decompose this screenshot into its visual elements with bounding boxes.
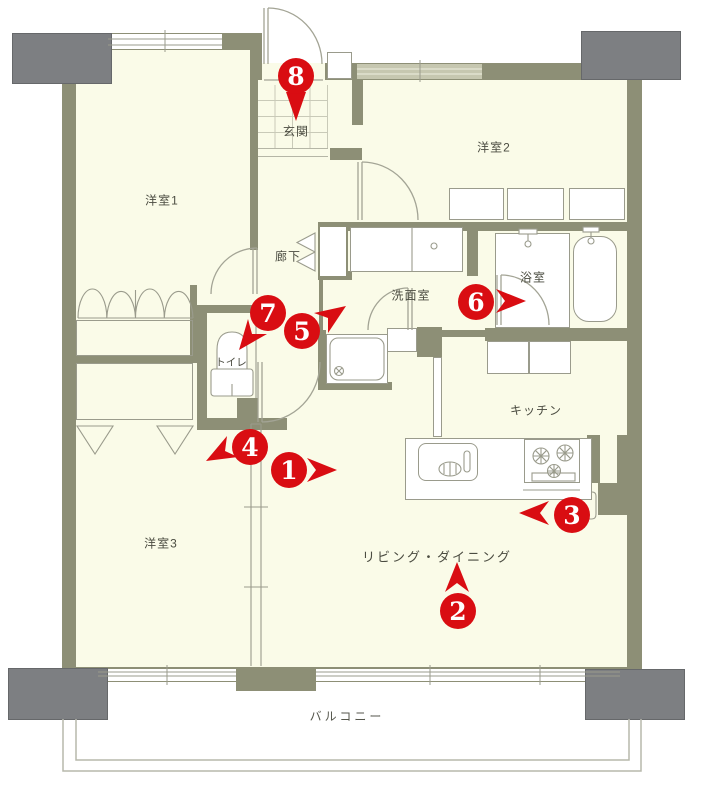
wall-washer-thin bbox=[319, 280, 323, 332]
room-label-yoshitsu3: 洋室3 bbox=[144, 535, 178, 552]
marker-4: 4 bbox=[232, 429, 268, 465]
room-label-living: リビング・ダイニング bbox=[362, 547, 512, 566]
genkan-step-line bbox=[258, 156, 328, 157]
wall-bath-bottom bbox=[485, 328, 627, 341]
genkan-step-line bbox=[258, 148, 328, 149]
room-label-senmen: 洗面室 bbox=[391, 287, 430, 304]
kitchen-partition bbox=[433, 357, 442, 437]
wall-toilet-step bbox=[237, 398, 258, 428]
wall-kitchen-block bbox=[598, 483, 627, 515]
entrance-door-arc bbox=[268, 8, 322, 64]
room-label-kitchen: キッチン bbox=[510, 402, 562, 419]
room-label-rouka: 廊下 bbox=[275, 248, 301, 265]
marker-3: 3 bbox=[554, 497, 590, 533]
wall-kitchen-stub-2 bbox=[617, 435, 627, 483]
entrance-door-leaf bbox=[264, 8, 268, 64]
wall-toilet-left bbox=[197, 305, 207, 430]
pillar-top-right bbox=[581, 31, 681, 80]
room2-closet-3 bbox=[569, 188, 625, 220]
balcony-divider bbox=[236, 667, 316, 691]
vanity-counter bbox=[350, 227, 463, 272]
cabinet-olive-block bbox=[417, 327, 442, 357]
hall-cabinet bbox=[318, 225, 348, 278]
wall-genkan-bottom-stub bbox=[330, 148, 362, 160]
window-room2-top bbox=[357, 64, 482, 79]
room-label-balcony: バルコニー bbox=[310, 708, 385, 725]
window-room1-top bbox=[108, 34, 222, 49]
room3-closet-body bbox=[76, 363, 193, 420]
marker-6: 6 bbox=[458, 284, 494, 320]
pillar-top-left bbox=[12, 33, 112, 84]
washing-machine-pan bbox=[326, 334, 388, 384]
wall-closet-divider bbox=[62, 355, 197, 363]
balcony-railing-outer bbox=[63, 719, 641, 771]
room-label-toilet: トイレ bbox=[215, 355, 247, 370]
fridge-space-2 bbox=[529, 341, 571, 374]
room-label-yokushitsu: 浴室 bbox=[520, 269, 546, 286]
room2-closet-1 bbox=[449, 188, 504, 220]
wall-hall-left bbox=[250, 50, 258, 250]
marker-7: 7 bbox=[250, 295, 286, 331]
wall-bath-divider bbox=[467, 230, 478, 276]
washroom-cabinet bbox=[387, 328, 417, 352]
pillar-bottom-left bbox=[8, 668, 108, 720]
floor-plan: 洋室1 洋室2 洋室3 玄関 廊下 トイレ 洗面室 浴室 キッチン リビング・ダ… bbox=[0, 0, 705, 787]
pillar-bottom-right bbox=[585, 669, 685, 720]
wall-washer-left bbox=[318, 330, 326, 390]
window-living-bottom bbox=[316, 669, 620, 681]
room-label-yoshitsu1: 洋室1 bbox=[145, 192, 179, 209]
marker-1: 1 bbox=[271, 452, 307, 488]
room-label-yoshitsu2: 洋室2 bbox=[477, 139, 511, 156]
room-label-genkan: 玄関 bbox=[283, 123, 309, 140]
marker-5: 5 bbox=[284, 313, 320, 349]
utility-box bbox=[327, 52, 352, 79]
window-room3-bottom bbox=[98, 669, 236, 681]
room1-closet-body bbox=[76, 320, 193, 356]
wall-washroom-bottom bbox=[440, 330, 490, 337]
wall-right bbox=[627, 80, 642, 682]
marker-2: 2 bbox=[440, 593, 476, 629]
balcony-railing-inner bbox=[76, 719, 629, 760]
wall-genkan-right-stub bbox=[352, 75, 363, 125]
bathtub bbox=[573, 236, 617, 322]
kitchen-stove bbox=[524, 439, 580, 483]
room2-closet-2 bbox=[507, 188, 564, 220]
marker-8: 8 bbox=[278, 58, 314, 94]
kitchen-sink-unit bbox=[418, 443, 478, 481]
fridge-space-1 bbox=[487, 341, 529, 374]
